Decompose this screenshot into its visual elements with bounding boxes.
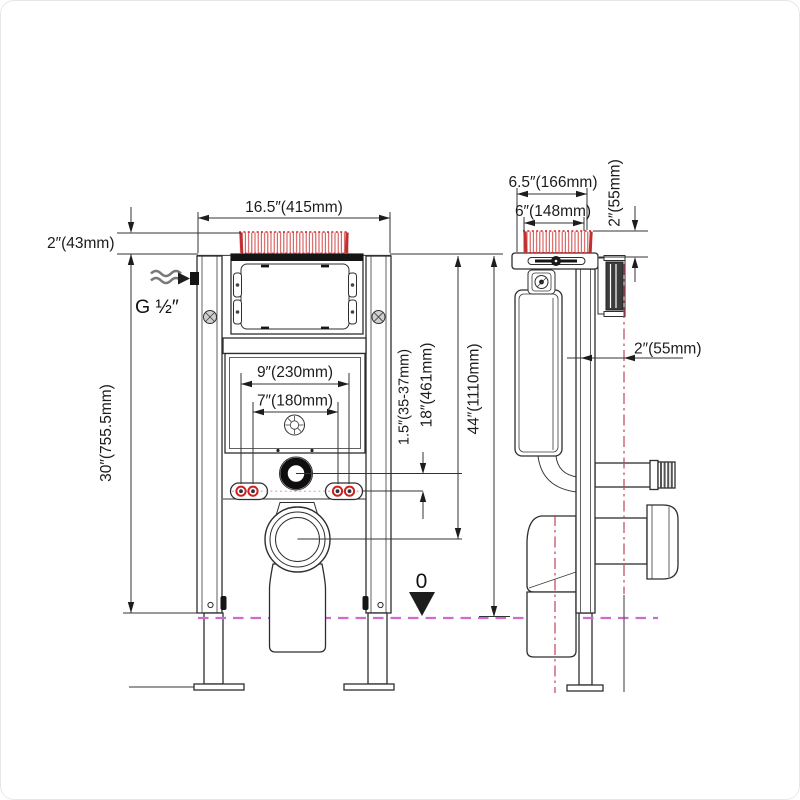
dim-total-height: 44″(1110mm) bbox=[466, 343, 483, 434]
installation-diagram: 16.5″(415mm) 2″(43mm) 30″(755.5mm) G ½″ … bbox=[1, 1, 800, 800]
flush-plate-top-band bbox=[231, 254, 363, 261]
front-left-rail bbox=[197, 256, 222, 613]
dim-top-width: 16.5″(415mm) bbox=[245, 199, 343, 216]
cistern-tank-side bbox=[515, 290, 562, 456]
datum-zero: 0 bbox=[416, 570, 428, 593]
water-inlet-connector bbox=[151, 271, 199, 285]
leg-lock-clamp-left bbox=[221, 596, 227, 610]
side-view-main bbox=[512, 231, 678, 657]
tank-top-band bbox=[223, 338, 366, 354]
floor-datum-marker: 0 bbox=[409, 570, 435, 616]
front-left-foot bbox=[194, 684, 244, 690]
side-frame-rail bbox=[576, 269, 595, 613]
side-foot bbox=[567, 685, 603, 691]
flush-opening-hatch-side bbox=[523, 231, 593, 253]
drain-elbow-front bbox=[270, 564, 326, 652]
flush-valve-logo bbox=[285, 415, 305, 435]
dim-bolt-outer: 9″(230mm) bbox=[257, 364, 333, 381]
dim-depth-outer: 6.5″(166mm) bbox=[508, 174, 597, 191]
side-leg bbox=[579, 613, 592, 685]
dim-depth-inner: 6″(148mm) bbox=[515, 203, 591, 220]
rail-screw-left bbox=[204, 311, 217, 324]
dim-recess-height: 2″(55mm) bbox=[607, 159, 624, 227]
inlet-valve-fitting bbox=[528, 270, 555, 294]
front-right-rail bbox=[366, 256, 391, 613]
leg-lock-clamp-right bbox=[363, 596, 369, 610]
dim-mid-height: 18″(461mm) bbox=[419, 343, 436, 428]
dim-wall-offset: 2″(55mm) bbox=[634, 341, 702, 358]
dim-bolt-inner: 7″(180mm) bbox=[257, 393, 333, 410]
dim-supply-gap: 1.5″(35-37mm) bbox=[397, 349, 413, 445]
dim-frame-height: 30″(755.5mm) bbox=[98, 384, 115, 482]
drain-connector-bell bbox=[595, 505, 678, 579]
front-drain-assembly bbox=[265, 503, 330, 653]
flush-opening-hatch-front bbox=[239, 232, 349, 254]
wall-mounting-channel bbox=[598, 256, 625, 317]
threaded-inlet-pipe bbox=[595, 461, 675, 490]
dim-water-inlet: G ½″ bbox=[135, 296, 179, 318]
drain-tube-side bbox=[527, 592, 576, 657]
product-dimension-image: 16.5″(415mm) 2″(43mm) 30″(755.5mm) G ½″ … bbox=[0, 0, 800, 800]
front-right-leg bbox=[368, 613, 387, 684]
dim-plate-offset: 2″(43mm) bbox=[47, 235, 115, 252]
rail-screw-right bbox=[372, 311, 385, 324]
front-left-leg bbox=[204, 613, 223, 684]
water-flow-squiggle bbox=[151, 271, 181, 276]
front-right-foot bbox=[344, 684, 394, 690]
flush-plate-window bbox=[241, 264, 349, 329]
front-supply-and-brackets bbox=[231, 457, 363, 500]
